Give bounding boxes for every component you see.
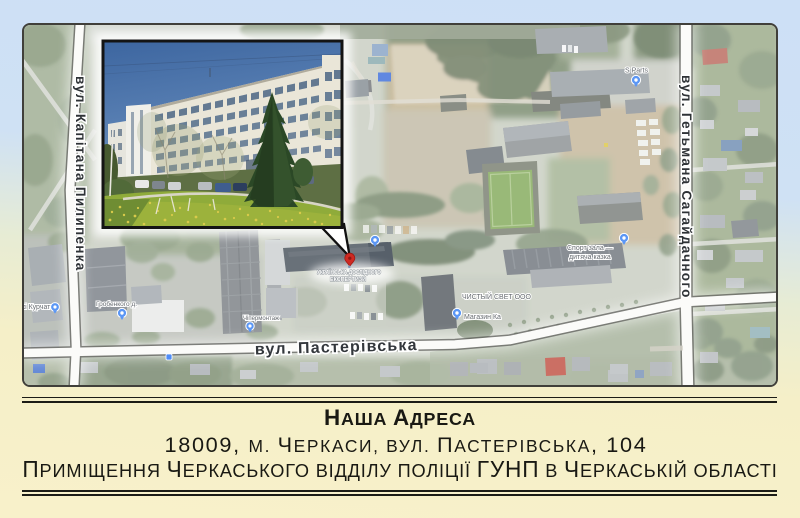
svg-text:Спорт зала —: Спорт зала —	[567, 245, 613, 252]
svg-text:Чіпермонтаж: Чіпермонтаж	[243, 316, 279, 322]
svg-text:УКРАЇНСЬКА-ДОСЛІДНОГО: УКРАЇНСЬКА-ДОСЛІДНОГО	[317, 269, 382, 276]
svg-text:ЕКСПЕРТИЗИ: ЕКСПЕРТИЗИ	[330, 277, 366, 283]
svg-text:вул. Капітана Пилипенка: вул. Капітана Пилипенка	[73, 76, 88, 272]
svg-text:кі Курчата: кі Курчата	[24, 303, 54, 311]
svg-text:ЧИСТЫЙ СВЕТ ООО: ЧИСТЫЙ СВЕТ ООО	[462, 292, 531, 301]
svg-text:Магазин Ка: Магазин Ка	[464, 314, 501, 321]
svg-text:дитяча казка: дитяча казка	[569, 254, 611, 261]
svg-text:S Parts: S Parts	[625, 68, 648, 75]
svg-text:вул. Гетьмана Сагайдачного: вул. Гетьмана Сагайдачного	[679, 75, 694, 299]
svg-text:Гробенкого д.: Гробенкого д.	[96, 300, 137, 308]
